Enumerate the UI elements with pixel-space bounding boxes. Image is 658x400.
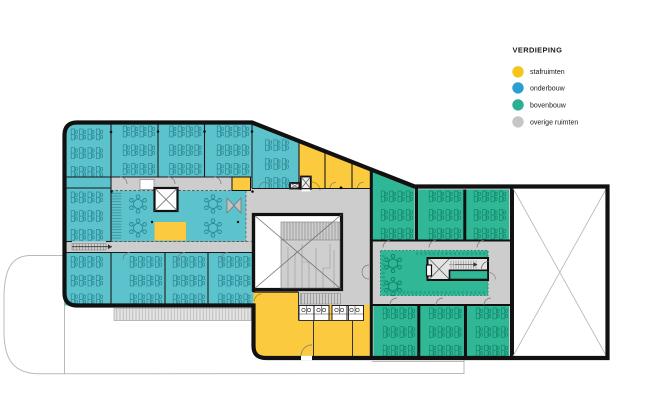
svg-text:stafruimten: stafruimten	[530, 69, 565, 76]
svg-text:bovenbouw: bovenbouw	[530, 102, 567, 109]
svg-text:VERDIEPING: VERDIEPING	[513, 45, 563, 54]
svg-text:onderbouw: onderbouw	[530, 85, 566, 92]
svg-text:overige ruimten: overige ruimten	[530, 119, 578, 126]
